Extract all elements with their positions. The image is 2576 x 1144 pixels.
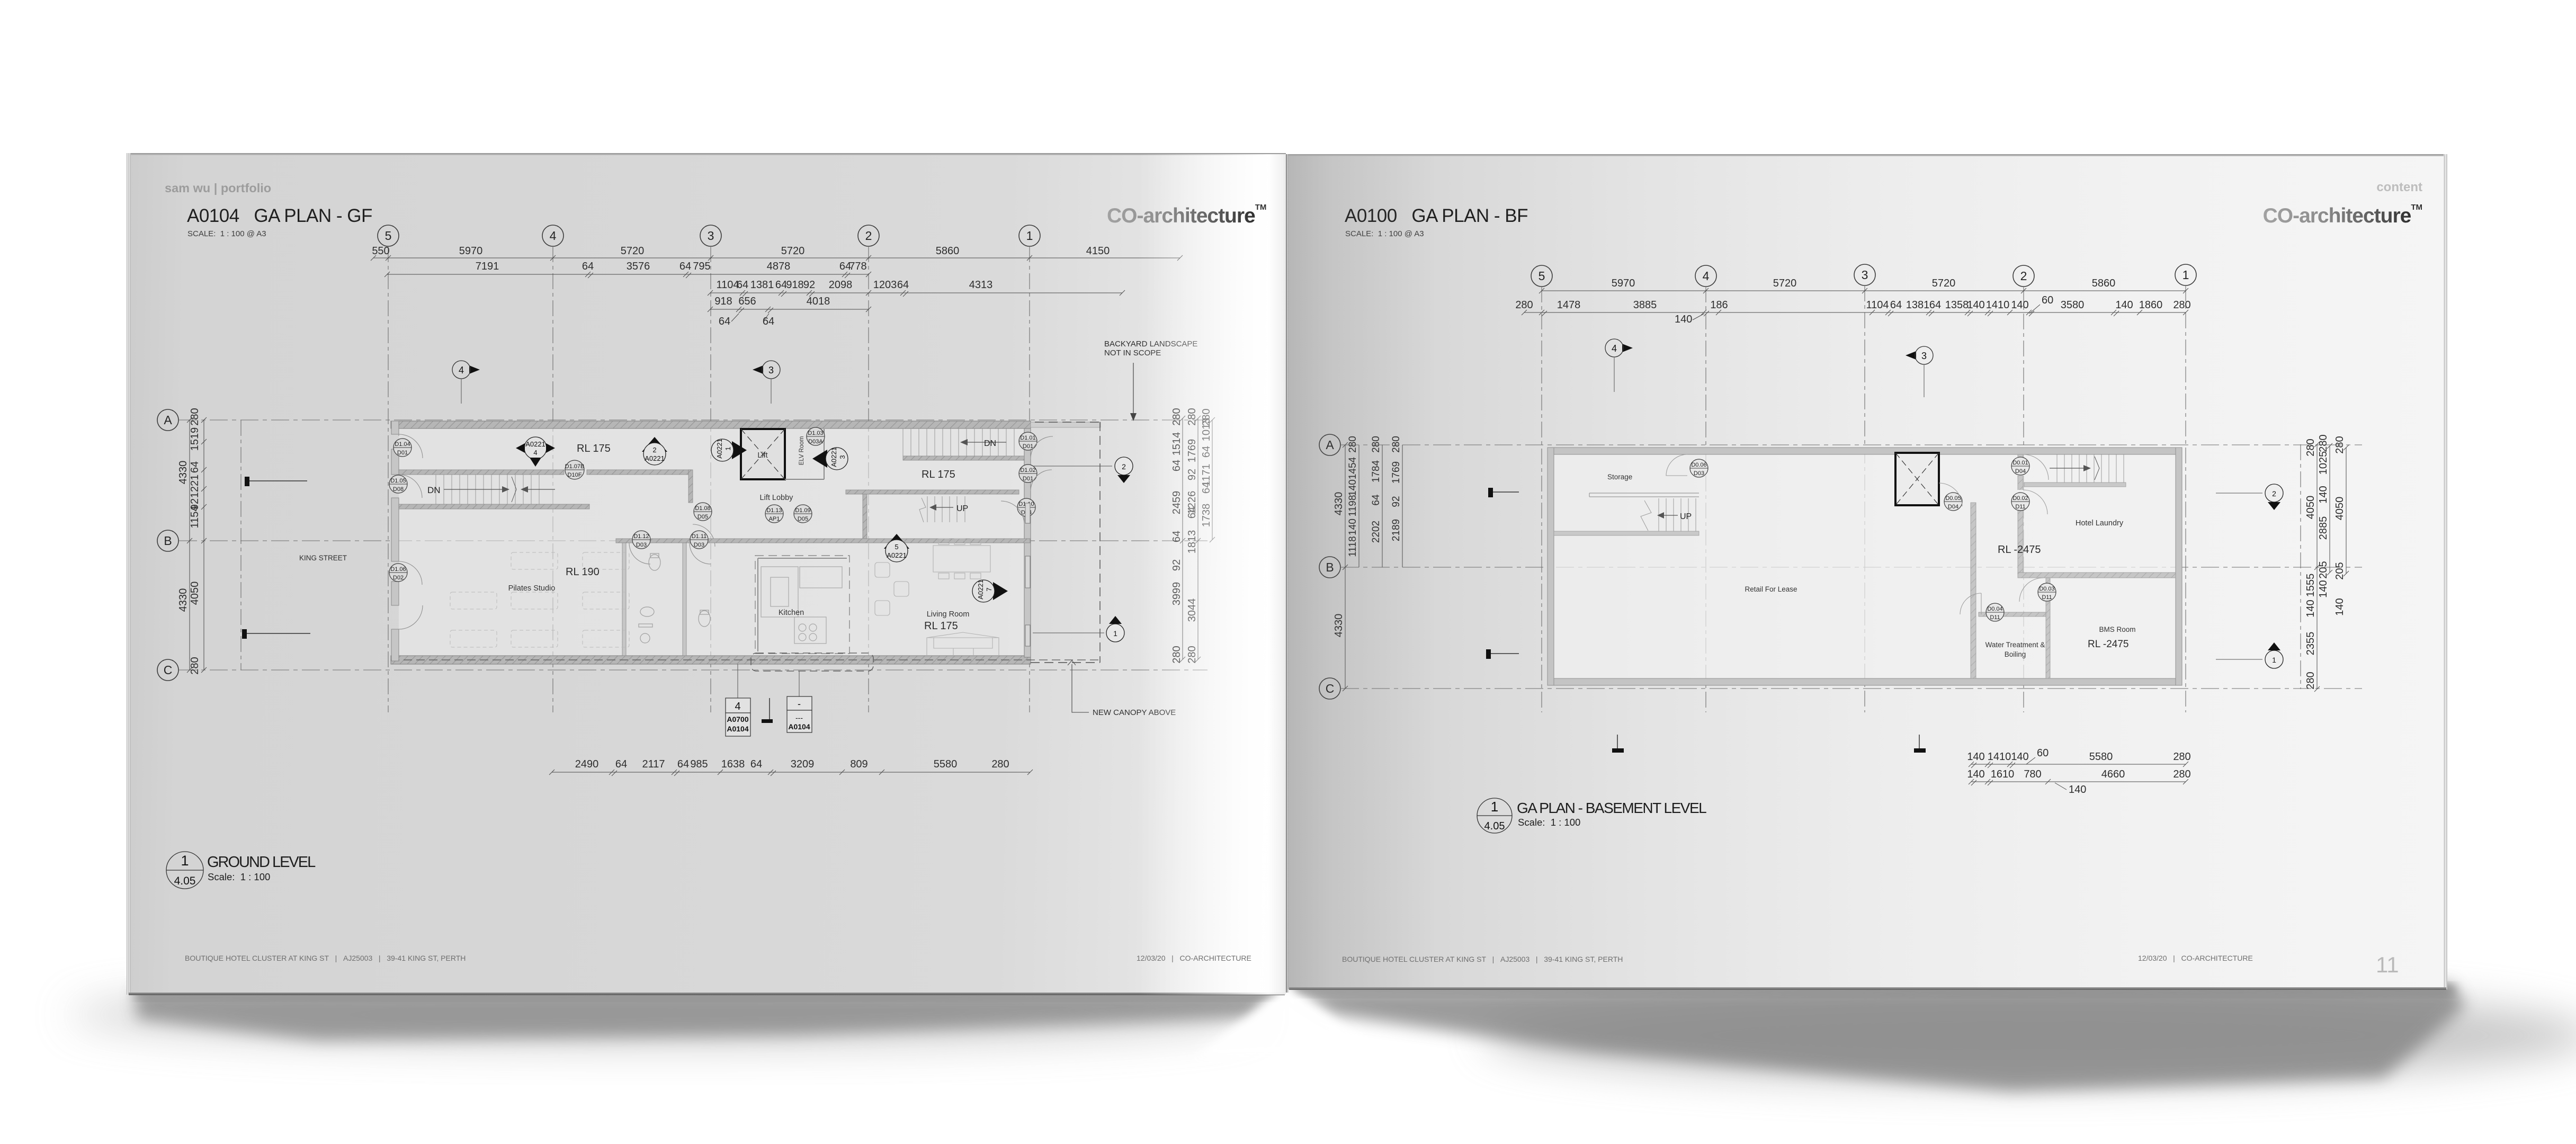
svg-text:5580: 5580 <box>2089 751 2113 763</box>
svg-text:205: 205 <box>2318 561 2329 578</box>
svg-text:D03A: D03A <box>808 439 823 445</box>
svg-text:A0221: A0221 <box>977 579 985 600</box>
svg-text:1381: 1381 <box>1906 299 1930 311</box>
svg-text:UP: UP <box>956 504 968 513</box>
svg-text:280: 280 <box>1171 646 1183 663</box>
svg-text:1478: 1478 <box>1557 299 1581 311</box>
svg-text:92: 92 <box>803 279 815 291</box>
svg-text:2: 2 <box>865 229 872 243</box>
svg-text:4050: 4050 <box>2305 496 2316 520</box>
svg-text:5580: 5580 <box>934 758 958 770</box>
svg-text:5: 5 <box>1539 269 1545 283</box>
svg-text:1738: 1738 <box>1201 504 1212 528</box>
svg-text:280: 280 <box>2173 751 2190 763</box>
svg-text:280: 280 <box>2173 299 2190 311</box>
svg-text:280: 280 <box>189 657 201 674</box>
svg-text:D1.07B: D1.07B <box>565 463 585 470</box>
svg-text:D1.09: D1.09 <box>795 507 810 514</box>
svg-text:1: 1 <box>2272 656 2276 664</box>
svg-text:D01: D01 <box>397 450 408 456</box>
svg-text:64: 64 <box>719 316 730 327</box>
svg-text:RL -2475: RL -2475 <box>2088 639 2128 650</box>
svg-text:2490: 2490 <box>575 758 599 770</box>
svg-text:1519: 1519 <box>189 427 201 451</box>
svg-text:RL 175: RL 175 <box>922 469 955 480</box>
svg-text:3576: 3576 <box>627 261 650 272</box>
svg-text:---: --- <box>795 713 803 722</box>
svg-text:5720: 5720 <box>1932 278 1956 289</box>
svg-text:1: 1 <box>1491 799 1498 815</box>
svg-text:DN: DN <box>984 439 996 448</box>
svg-text:2: 2 <box>2272 489 2276 498</box>
svg-text:1013: 1013 <box>1201 418 1212 442</box>
svg-text:64: 64 <box>737 279 748 291</box>
svg-text:2: 2 <box>2020 269 2027 283</box>
svg-text:D04: D04 <box>2015 468 2026 475</box>
svg-text:186: 186 <box>1710 299 1728 311</box>
svg-text:140: 140 <box>1967 751 1984 763</box>
svg-text:3999: 3999 <box>1171 582 1183 606</box>
svg-text:1: 1 <box>181 853 189 869</box>
svg-text:1610: 1610 <box>1991 768 2015 780</box>
svg-text:3: 3 <box>838 455 846 459</box>
svg-text:1104: 1104 <box>716 279 739 291</box>
svg-text:UP: UP <box>1680 512 1692 521</box>
svg-text:3: 3 <box>1862 268 1868 282</box>
svg-text:3: 3 <box>768 365 774 376</box>
svg-text:1784: 1784 <box>1371 460 1382 482</box>
svg-text:D1.06: D1.06 <box>390 566 406 573</box>
svg-text:4050: 4050 <box>2334 497 2346 521</box>
svg-text:4: 4 <box>1612 343 1617 354</box>
svg-text:Living Room: Living Room <box>927 610 970 619</box>
svg-text:140: 140 <box>1347 479 1358 496</box>
svg-text:280: 280 <box>189 408 201 425</box>
svg-text:4330: 4330 <box>177 588 189 612</box>
svg-text:5970: 5970 <box>1612 278 1635 289</box>
svg-text:140: 140 <box>2115 299 2133 311</box>
svg-text:A0221: A0221 <box>645 454 665 462</box>
svg-text:2202: 2202 <box>1371 521 1382 543</box>
svg-text:1: 1 <box>2183 268 2189 282</box>
svg-text:1154: 1154 <box>189 505 201 528</box>
svg-text:Boiling: Boiling <box>2005 650 2026 658</box>
svg-text:780: 780 <box>2024 768 2041 780</box>
svg-text:1221: 1221 <box>189 475 201 498</box>
svg-text:1555: 1555 <box>2305 574 2316 597</box>
svg-text:D0.06: D0.06 <box>1691 462 1706 468</box>
svg-text:D04: D04 <box>1948 504 1958 510</box>
svg-text:RL 175: RL 175 <box>924 620 958 632</box>
svg-text:3209: 3209 <box>791 758 815 770</box>
svg-text:Hotel Laundry: Hotel Laundry <box>2076 519 2124 528</box>
svg-text:64: 64 <box>615 758 627 770</box>
svg-text:550: 550 <box>372 245 389 257</box>
svg-text:64: 64 <box>1371 494 1382 506</box>
svg-text:5860: 5860 <box>2092 278 2116 289</box>
svg-text:140: 140 <box>2069 784 2086 796</box>
svg-text:A0221: A0221 <box>715 439 723 459</box>
svg-text:140: 140 <box>2305 600 2316 617</box>
svg-text:C: C <box>1326 682 1335 695</box>
svg-text:D02: D02 <box>393 575 404 581</box>
svg-text:D0.03: D0.03 <box>2039 586 2054 592</box>
svg-text:4330: 4330 <box>1333 492 1345 516</box>
svg-text:140: 140 <box>2318 486 2329 503</box>
svg-text:KING STREET: KING STREET <box>299 554 347 562</box>
svg-text:778: 778 <box>849 261 866 272</box>
svg-text:7191: 7191 <box>476 261 499 272</box>
svg-text:64: 64 <box>677 758 689 770</box>
svg-text:C: C <box>164 663 173 677</box>
svg-text:A0104: A0104 <box>788 722 810 731</box>
svg-text:4050: 4050 <box>189 582 201 605</box>
svg-text:1104: 1104 <box>1866 299 1889 311</box>
svg-text:1813: 1813 <box>1186 530 1198 554</box>
svg-text:1381: 1381 <box>750 279 774 291</box>
svg-text:7: 7 <box>985 587 993 591</box>
svg-text:3580: 3580 <box>2061 299 2085 311</box>
svg-text:4878: 4878 <box>767 261 791 272</box>
svg-text:60: 60 <box>2037 747 2049 759</box>
svg-text:140: 140 <box>1675 314 1692 325</box>
svg-text:1: 1 <box>724 446 732 450</box>
svg-text:140: 140 <box>1967 299 1984 311</box>
svg-text:D03: D03 <box>636 542 647 548</box>
svg-text:64: 64 <box>1201 482 1212 494</box>
svg-text:4.05: 4.05 <box>1484 820 1505 832</box>
svg-text:D1.03: D1.03 <box>808 430 823 436</box>
svg-text:2: 2 <box>652 446 656 454</box>
svg-text:64: 64 <box>189 461 201 473</box>
svg-text:64: 64 <box>763 316 774 327</box>
svg-text:64: 64 <box>897 279 909 291</box>
svg-text:D01: D01 <box>1023 443 1033 450</box>
svg-text:140: 140 <box>2011 751 2028 763</box>
svg-text:A0221: A0221 <box>830 447 838 467</box>
svg-text:D10F: D10F <box>568 472 582 478</box>
svg-text:1860: 1860 <box>2139 299 2163 311</box>
svg-text:280: 280 <box>2305 672 2316 689</box>
svg-text:280: 280 <box>2173 768 2190 780</box>
svg-text:64: 64 <box>1890 299 1902 311</box>
svg-text:280: 280 <box>1186 408 1198 425</box>
svg-text:D1.02: D1.02 <box>1020 467 1035 473</box>
svg-text:4150: 4150 <box>1086 245 1110 257</box>
svg-text:D0.04: D0.04 <box>1987 606 2002 612</box>
svg-text:D0.05: D0.05 <box>1945 495 1961 502</box>
svg-text:92: 92 <box>1171 559 1183 571</box>
svg-text:280: 280 <box>1515 299 1533 311</box>
svg-text:140: 140 <box>1347 519 1358 535</box>
svg-text:D05: D05 <box>697 514 708 520</box>
svg-text:92: 92 <box>1391 496 1402 507</box>
svg-text:5720: 5720 <box>621 245 645 257</box>
svg-text:4330: 4330 <box>177 461 189 485</box>
svg-text:D08: D08 <box>393 486 404 493</box>
svg-text:D01: D01 <box>1023 476 1033 482</box>
svg-text:280: 280 <box>1347 436 1358 453</box>
svg-text:5: 5 <box>385 229 392 243</box>
svg-text:1198: 1198 <box>1347 495 1358 517</box>
svg-text:1: 1 <box>1026 229 1033 243</box>
svg-text:NEW CANOPY ABOVE: NEW CANOPY ABOVE <box>1093 708 1176 717</box>
svg-text:RL 175: RL 175 <box>577 443 611 454</box>
svg-text:1410: 1410 <box>1988 751 2011 763</box>
svg-text:Kitchen: Kitchen <box>779 609 804 617</box>
svg-text:A0221: A0221 <box>887 551 907 559</box>
svg-text:280: 280 <box>2318 434 2329 452</box>
svg-text:140: 140 <box>2334 598 2346 615</box>
svg-text:64: 64 <box>582 261 594 272</box>
svg-text:BACKYARD LANDSCAPE: BACKYARD LANDSCAPE <box>1104 339 1197 348</box>
svg-text:1454: 1454 <box>1347 457 1358 479</box>
svg-text:5970: 5970 <box>459 245 483 257</box>
svg-text:280: 280 <box>2334 436 2346 453</box>
svg-text:A0104: A0104 <box>727 725 748 733</box>
svg-text:205: 205 <box>2334 562 2346 579</box>
svg-text:140: 140 <box>2011 299 2028 311</box>
svg-text:D1.08: D1.08 <box>695 505 710 512</box>
svg-text:140: 140 <box>1967 768 1984 780</box>
svg-text:ELV Room: ELV Room <box>799 436 805 466</box>
svg-text:5720: 5720 <box>781 245 805 257</box>
svg-text:2098: 2098 <box>829 279 853 291</box>
svg-text:3885: 3885 <box>1633 299 1657 311</box>
svg-text:2885: 2885 <box>2318 516 2329 540</box>
svg-text:1514: 1514 <box>1171 432 1183 456</box>
svg-text:D05: D05 <box>798 516 808 522</box>
svg-text:B: B <box>164 534 172 548</box>
svg-text:1410: 1410 <box>1986 299 2010 311</box>
svg-text:1769: 1769 <box>1186 439 1198 463</box>
svg-text:D03: D03 <box>694 542 704 548</box>
svg-text:2355: 2355 <box>2305 632 2316 656</box>
svg-text:-: - <box>798 699 801 709</box>
svg-text:64: 64 <box>1201 446 1212 458</box>
svg-text:918: 918 <box>786 279 803 291</box>
svg-text:5: 5 <box>895 543 898 551</box>
svg-text:D11: D11 <box>2042 594 2052 601</box>
svg-text:DN: DN <box>427 485 441 495</box>
svg-text:280: 280 <box>1371 436 1382 453</box>
svg-text:D03: D03 <box>1694 470 1704 477</box>
svg-text:1769: 1769 <box>1391 461 1402 484</box>
svg-text:1118: 1118 <box>1347 536 1358 557</box>
svg-text:D0.01: D0.01 <box>2012 460 2028 466</box>
svg-text:2459: 2459 <box>1171 491 1183 515</box>
svg-text:5720: 5720 <box>1773 278 1797 289</box>
svg-text:4: 4 <box>550 229 557 243</box>
svg-text:D1.11: D1.11 <box>692 533 707 540</box>
svg-text:D1.12: D1.12 <box>633 533 649 540</box>
svg-text:D0.02: D0.02 <box>2012 495 2028 502</box>
svg-text:2: 2 <box>1122 462 1126 471</box>
svg-text:4018: 4018 <box>807 296 830 307</box>
svg-text:D11: D11 <box>2015 504 2025 510</box>
svg-text:A0700: A0700 <box>727 715 748 723</box>
svg-text:D11: D11 <box>1990 614 2000 621</box>
svg-text:64: 64 <box>1186 507 1198 519</box>
svg-text:5860: 5860 <box>936 245 960 257</box>
svg-text:B: B <box>1326 560 1334 574</box>
svg-text:Lift: Lift <box>757 451 767 460</box>
svg-text:Retail For Lease: Retail For Lease <box>1745 585 1797 593</box>
svg-text:64: 64 <box>750 758 762 770</box>
svg-text:64: 64 <box>775 279 787 291</box>
svg-text:D1.13: D1.13 <box>766 507 782 514</box>
svg-text:D1.01: D1.01 <box>1020 435 1035 441</box>
svg-text:985: 985 <box>690 758 708 770</box>
svg-text:4: 4 <box>735 701 740 712</box>
svg-text:D1.05: D1.05 <box>390 478 406 484</box>
svg-text:280: 280 <box>2305 439 2316 456</box>
svg-text:2117: 2117 <box>642 758 665 770</box>
svg-text:280: 280 <box>1171 408 1183 425</box>
svg-text:1203: 1203 <box>873 279 897 291</box>
svg-text:92: 92 <box>1186 469 1198 480</box>
svg-text:64: 64 <box>1929 299 1941 311</box>
svg-text:1025: 1025 <box>2318 451 2329 475</box>
svg-text:4660: 4660 <box>2101 768 2125 780</box>
svg-text:4: 4 <box>459 365 464 376</box>
svg-text:795: 795 <box>693 261 710 272</box>
svg-text:280: 280 <box>1186 646 1198 663</box>
svg-text:1638: 1638 <box>721 758 745 770</box>
svg-text:Lift Lobby: Lift Lobby <box>760 494 794 502</box>
svg-text:4: 4 <box>533 449 537 457</box>
svg-text:4313: 4313 <box>969 279 993 291</box>
svg-text:Pilates Studio: Pilates Studio <box>508 584 556 593</box>
svg-text:Storage: Storage <box>1607 473 1632 481</box>
svg-text:BMS Room: BMS Room <box>2099 625 2135 633</box>
svg-text:A0221: A0221 <box>525 440 545 448</box>
svg-text:NOT IN SCOPE: NOT IN SCOPE <box>1104 348 1161 358</box>
svg-text:64: 64 <box>1171 531 1183 542</box>
svg-text:A: A <box>1326 438 1334 452</box>
svg-text:4330: 4330 <box>1333 614 1345 638</box>
svg-text:280: 280 <box>991 758 1009 770</box>
svg-text:A: A <box>164 413 172 427</box>
svg-text:4: 4 <box>1703 269 1710 283</box>
svg-text:3: 3 <box>708 229 714 243</box>
svg-text:1: 1 <box>1113 629 1117 638</box>
svg-text:4.05: 4.05 <box>174 875 196 887</box>
svg-text:RL -2475: RL -2475 <box>1998 544 2041 556</box>
svg-text:AP1: AP1 <box>769 516 780 522</box>
svg-text:D1.04: D1.04 <box>395 441 410 448</box>
svg-text:809: 809 <box>850 758 867 770</box>
svg-text:3044: 3044 <box>1186 598 1198 622</box>
svg-text:280: 280 <box>1391 436 1402 453</box>
svg-text:140: 140 <box>2318 580 2329 597</box>
svg-text:1358: 1358 <box>1945 299 1969 311</box>
svg-text:3: 3 <box>1921 351 1927 361</box>
svg-text:RL 190: RL 190 <box>566 566 600 578</box>
svg-text:64: 64 <box>1171 460 1183 471</box>
svg-text:Water Treatment &: Water Treatment & <box>1985 641 2045 649</box>
svg-text:656: 656 <box>738 296 756 307</box>
svg-text:918: 918 <box>714 296 732 307</box>
svg-text:60: 60 <box>2042 294 2053 306</box>
svg-text:2189: 2189 <box>1391 519 1402 541</box>
svg-text:64: 64 <box>679 261 691 272</box>
